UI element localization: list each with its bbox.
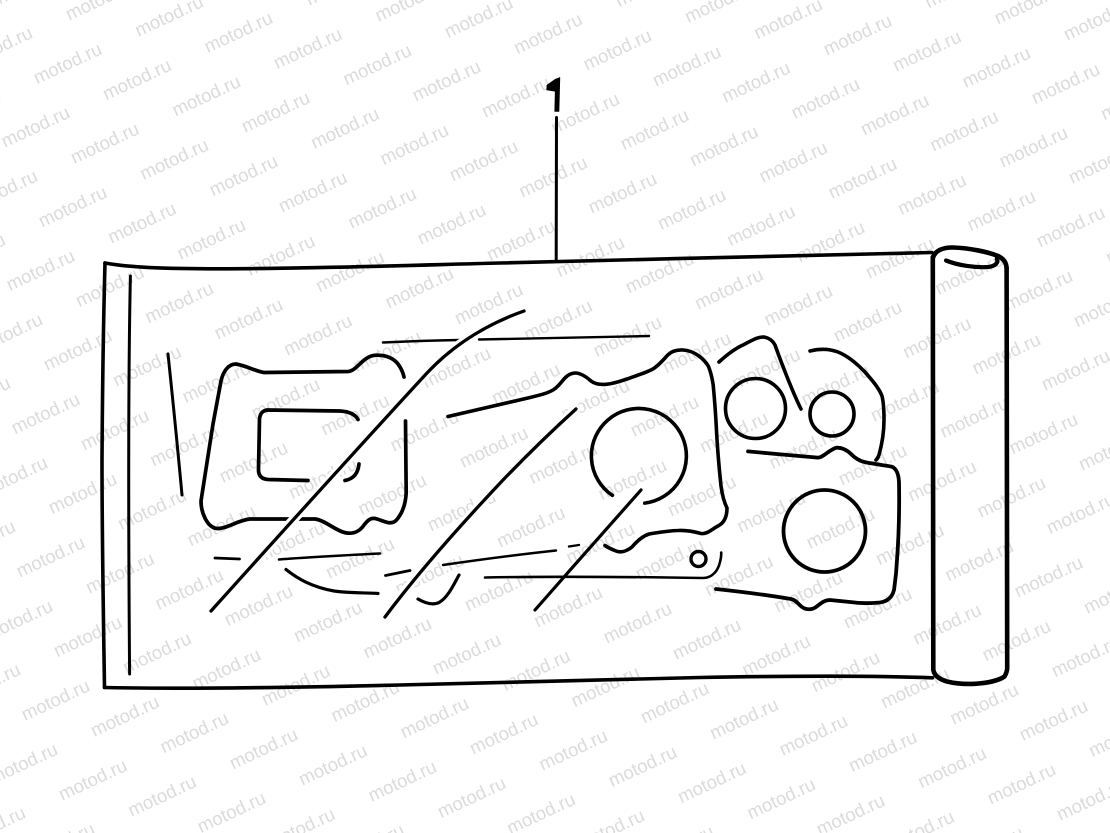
svg-text:motod.ru: motod.ru <box>446 135 521 185</box>
svg-text:motod.ru: motod.ru <box>503 788 578 833</box>
svg-text:motod.ru: motod.ru <box>706 694 781 744</box>
svg-text:motod.ru: motod.ru <box>365 756 440 806</box>
svg-text:motod.ru: motod.ru <box>270 23 345 73</box>
svg-text:motod.ru: motod.ru <box>691 264 766 314</box>
svg-text:motod.ru: motod.ru <box>67 118 142 168</box>
svg-text:motod.ru: motod.ru <box>0 308 46 358</box>
svg-text:motod.ru: motod.ru <box>0 0 68 8</box>
svg-text:motod.ru: motod.ru <box>434 772 509 822</box>
svg-text:motod.ru: motod.ru <box>899 312 974 362</box>
svg-text:motod.ru: motod.ru <box>738 630 813 680</box>
svg-text:motod.ru: motod.ru <box>55 754 130 804</box>
svg-text:motod.ru: motod.ru <box>18 675 93 725</box>
svg-text:motod.ru: motod.ru <box>131 0 206 41</box>
svg-text:motod.ru: motod.ru <box>263 803 338 833</box>
svg-text:motod.ru: motod.ru <box>104 197 179 247</box>
svg-text:motod.ru: motod.ru <box>788 73 863 123</box>
svg-text:motod.ru: motod.ru <box>332 819 407 833</box>
svg-text:motod.ru: motod.ru <box>1043 488 1110 538</box>
svg-text:motod.ru: motod.ru <box>674 757 749 807</box>
svg-text:motod.ru: motod.ru <box>441 0 516 42</box>
svg-text:motod.ru: motod.ru <box>0 229 8 279</box>
svg-text:motod.ru: motod.ru <box>211 293 286 343</box>
svg-text:motod.ru: motod.ru <box>872 519 947 569</box>
svg-text:motod.ru: motod.ru <box>1097 74 1110 124</box>
svg-text:motod.ru: motod.ru <box>87 691 162 741</box>
svg-text:motod.ru: motod.ru <box>307 103 382 153</box>
svg-text:motod.ru: motod.ru <box>1102 218 1110 268</box>
svg-text:motod.ru: motod.ru <box>595 454 670 504</box>
svg-text:motod.ru: motod.ru <box>238 87 313 137</box>
svg-text:motod.ru: motod.ru <box>889 26 964 76</box>
svg-text:motod.ru: motod.ru <box>535 725 610 775</box>
svg-text:motod.ru: motod.ru <box>397 692 472 742</box>
svg-text:motod.ru: motod.ru <box>466 708 541 758</box>
svg-text:motod.ru: motod.ru <box>409 55 484 105</box>
svg-text:motod.ru: motod.ru <box>776 710 851 760</box>
svg-text:motod.ru: motod.ru <box>243 230 318 280</box>
svg-text:motod.ru: motod.ru <box>605 741 680 791</box>
svg-text:motod.ru: motod.ru <box>3 245 78 295</box>
svg-text:motod.ru: motod.ru <box>62 0 137 24</box>
svg-text:motod.ru: motod.ru <box>622 247 697 297</box>
svg-text:motod.ru: motod.ru <box>226 723 301 773</box>
svg-text:motod.ru: motod.ru <box>733 487 808 537</box>
svg-text:motod.ru: motod.ru <box>82 548 157 598</box>
svg-text:motod.ru: motod.ru <box>35 181 110 231</box>
svg-text:motod.ru: motod.ru <box>414 199 489 249</box>
svg-text:motod.ru: motod.ru <box>974 472 1049 522</box>
svg-text:motod.ru: motod.ru <box>637 677 712 727</box>
svg-text:motod.ru: motod.ru <box>947 679 1022 729</box>
svg-text:motod.ru: motod.ru <box>1006 408 1081 458</box>
svg-text:motod.ru: motod.ru <box>1033 201 1108 251</box>
svg-text:motod.ru: motod.ru <box>1080 568 1110 618</box>
svg-text:motod.ru: motod.ru <box>258 660 333 710</box>
svg-text:motod.ru: motod.ru <box>681 0 756 27</box>
svg-text:motod.ru: motod.ru <box>1011 552 1086 602</box>
svg-text:motod.ru: motod.ru <box>573 804 648 833</box>
svg-text:motod.ru: motod.ru <box>894 169 969 219</box>
svg-text:motod.ru: motod.ru <box>914 742 989 792</box>
svg-text:motod.ru: motod.ru <box>642 821 717 833</box>
svg-text:motod.ru: motod.ru <box>382 262 457 312</box>
svg-text:motod.ru: motod.ru <box>0 515 19 565</box>
svg-text:motod.ru: motod.ru <box>355 469 430 519</box>
svg-text:motod.ru: motod.ru <box>761 280 836 330</box>
svg-text:motod.ru: motod.ru <box>808 646 883 696</box>
svg-text:motod.ru: motod.ru <box>0 738 61 788</box>
svg-text:motod.ru: motod.ru <box>280 310 355 360</box>
svg-text:motod.ru: motod.ru <box>743 773 818 823</box>
svg-text:motod.ru: motod.ru <box>0 658 24 708</box>
svg-text:motod.ru: motod.ru <box>344 183 419 233</box>
svg-text:motod.ru: motod.ru <box>686 120 761 170</box>
svg-text:motod.ru: motod.ru <box>0 165 41 215</box>
svg-text:motod.ru: motod.ru <box>553 231 628 281</box>
svg-text:motod.ru: motod.ru <box>1075 424 1110 474</box>
svg-text:motod.ru: motod.ru <box>194 787 269 833</box>
svg-text:motod.ru: motod.ru <box>936 392 1011 442</box>
svg-text:motod.ru: motod.ru <box>1060 0 1110 44</box>
svg-text:motod.ru: motod.ru <box>909 599 984 649</box>
svg-text:motod.ru: motod.ru <box>387 406 462 456</box>
svg-text:motod.ru: motod.ru <box>1028 58 1103 108</box>
svg-text:motod.ru: motod.ru <box>0 102 73 152</box>
svg-text:motod.ru: motod.ru <box>45 468 120 518</box>
svg-text:motod.ru: motod.ru <box>750 0 825 43</box>
svg-text:motod.ru: motod.ru <box>563 518 638 568</box>
svg-text:motod.ru: motod.ru <box>157 707 232 757</box>
svg-text:motod.ru: motod.ru <box>952 822 1027 833</box>
svg-text:motod.ru: motod.ru <box>109 341 184 391</box>
svg-text:motod.ru: motod.ru <box>530 581 605 631</box>
svg-text:motod.ru: motod.ru <box>295 740 370 790</box>
svg-text:motod.ru: motod.ru <box>921 0 996 12</box>
svg-text:motod.ru: motod.ru <box>979 615 1054 665</box>
svg-text:motod.ru: motod.ru <box>169 70 244 120</box>
svg-text:motod.ru: motod.ru <box>669 614 744 664</box>
svg-text:motod.ru: motod.ru <box>820 9 895 59</box>
svg-text:motod.ru: motod.ru <box>339 39 414 89</box>
svg-text:motod.ru: motod.ru <box>498 645 573 695</box>
svg-text:motod.ru: motod.ru <box>991 0 1066 28</box>
svg-text:motod.ru: motod.ru <box>718 57 793 107</box>
svg-text:motod.ru: motod.ru <box>1016 695 1091 745</box>
svg-text:motod.ru: motod.ru <box>377 119 452 169</box>
svg-text:motod.ru: motod.ru <box>1001 265 1076 315</box>
svg-text:motod.ru: motod.ru <box>99 54 174 104</box>
svg-text:motod.ru: motod.ru <box>206 150 281 200</box>
svg-text:motod.ru: motod.ru <box>124 771 199 821</box>
svg-text:motod.ru: motod.ru <box>612 0 687 11</box>
svg-text:motod.ru: motod.ru <box>862 232 937 282</box>
svg-text:motod.ru: motod.ru <box>360 612 435 662</box>
svg-text:motod.ru: motod.ru <box>649 41 724 91</box>
svg-text:motod.ru: motod.ru <box>429 629 504 679</box>
svg-text:motod.ru: motod.ru <box>30 38 105 88</box>
svg-text:motod.ru: motod.ru <box>184 500 259 550</box>
svg-text:motod.ru: motod.ru <box>959 42 1034 92</box>
svg-text:motod.ru: motod.ru <box>478 72 553 122</box>
svg-text:motod.ru: motod.ru <box>350 326 425 376</box>
svg-text:motod.ru: motod.ru <box>600 598 675 648</box>
svg-text:motod.ru: motod.ru <box>77 404 152 454</box>
svg-text:motod.ru: motod.ru <box>580 24 655 74</box>
svg-text:motod.ru: motod.ru <box>290 596 365 646</box>
svg-text:motod.ru: motod.ru <box>723 200 798 250</box>
svg-text:motod.ru: motod.ru <box>13 531 88 581</box>
svg-text:motod.ru: motod.ru <box>0 22 36 72</box>
svg-text:motod.ru: motod.ru <box>830 296 905 346</box>
svg-text:motod.ru: motod.ru <box>1085 711 1110 761</box>
svg-text:motod.ru: motod.ru <box>1070 281 1110 331</box>
svg-text:motod.ru: motod.ru <box>1065 138 1110 188</box>
svg-text:motod.ru: motod.ru <box>926 105 1001 155</box>
svg-text:motod.ru: motod.ru <box>493 502 568 552</box>
svg-text:motod.ru: motod.ru <box>654 184 729 234</box>
svg-text:motod.ru: motod.ru <box>0 452 51 502</box>
svg-text:motod.ru: motod.ru <box>756 137 831 187</box>
svg-text:motod.ru: motod.ru <box>510 8 585 58</box>
svg-text:motod.ru: motod.ru <box>174 214 249 264</box>
svg-text:motod.ru: motod.ru <box>904 456 979 506</box>
svg-text:motod.ru: motod.ru <box>23 818 98 833</box>
svg-text:motod.ru: motod.ru <box>461 565 536 615</box>
svg-text:motod.ru: motod.ru <box>825 153 900 203</box>
svg-text:motod.ru: motod.ru <box>840 583 915 633</box>
svg-text:motod.ru: motod.ru <box>877 662 952 712</box>
svg-text:motod.ru: motod.ru <box>275 166 350 216</box>
svg-text:motod.ru: motod.ru <box>0 595 56 645</box>
svg-text:motod.ru: motod.ru <box>312 246 387 296</box>
svg-text:motod.ru: motod.ru <box>488 358 563 408</box>
svg-text:motod.ru: motod.ru <box>1038 345 1110 395</box>
svg-text:motod.ru: motod.ru <box>1048 631 1110 681</box>
svg-text:motod.ru: motod.ru <box>0 372 13 422</box>
svg-text:motod.ru: motod.ru <box>845 726 920 776</box>
svg-text:motod.ru: motod.ru <box>793 216 868 266</box>
svg-text:motod.ru: motod.ru <box>568 661 643 711</box>
svg-text:motod.ru: motod.ru <box>114 484 189 534</box>
svg-text:motod.ru: motod.ru <box>1053 775 1110 825</box>
svg-text:motod.ru: motod.ru <box>0 85 3 135</box>
svg-text:motod.ru: motod.ru <box>515 151 590 201</box>
svg-text:motod.ru: motod.ru <box>201 7 276 57</box>
svg-text:motod.ru: motod.ru <box>696 407 771 457</box>
svg-text:motod.ru: motod.ru <box>136 134 211 184</box>
svg-text:motod.ru: motod.ru <box>141 277 216 327</box>
svg-text:motod.ru: motod.ru <box>372 0 447 26</box>
svg-text:motod.ru: motod.ru <box>483 215 558 265</box>
svg-text:motod.ru: motod.ru <box>0 802 29 833</box>
svg-text:motod.ru: motod.ru <box>984 758 1059 808</box>
svg-text:motod.ru: motod.ru <box>585 168 660 218</box>
svg-text:motod.ru: motod.ru <box>882 806 957 833</box>
svg-text:motod.ru: motod.ru <box>996 122 1071 172</box>
svg-text:motod.ru: motod.ru <box>50 611 125 661</box>
svg-text:motod.ru: motod.ru <box>964 185 1039 235</box>
svg-text:motod.ru: motod.ru <box>8 388 83 438</box>
svg-text:motod.ru: motod.ru <box>451 279 526 329</box>
svg-text:motod.ru: motod.ru <box>617 104 692 154</box>
svg-text:motod.ru: motod.ru <box>302 0 377 9</box>
svg-text:motod.ru: motod.ru <box>857 89 932 139</box>
svg-text:motod.ru: motod.ru <box>813 789 888 833</box>
